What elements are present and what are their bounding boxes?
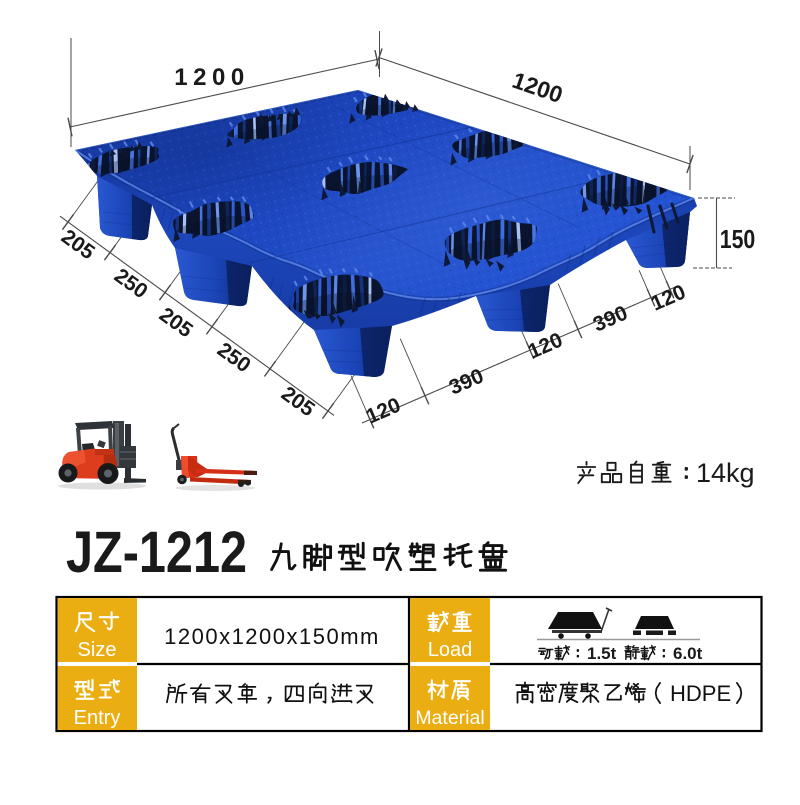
svg-text:JZ-1212: JZ-1212: [66, 520, 247, 585]
svg-text:14kg: 14kg: [696, 458, 755, 488]
svg-text:150: 150: [720, 225, 756, 255]
svg-text:6.0t: 6.0t: [673, 644, 703, 663]
svg-text:Material: Material: [415, 707, 484, 729]
svg-text:Entry: Entry: [74, 707, 121, 729]
svg-text:Size: Size: [78, 639, 117, 661]
svg-text:Load: Load: [428, 639, 473, 661]
svg-text:HDPE: HDPE: [670, 681, 731, 706]
svg-text:1.5t: 1.5t: [587, 644, 617, 663]
svg-text:1200: 1200: [174, 64, 249, 91]
svg-text:1200x1200x150mm: 1200x1200x150mm: [164, 624, 380, 649]
